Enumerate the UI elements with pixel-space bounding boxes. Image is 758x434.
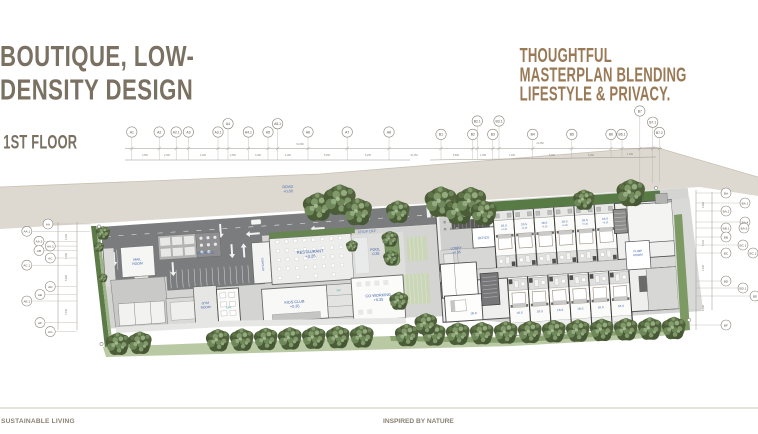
svg-text:1,350: 1,350: [627, 153, 634, 156]
svg-text:BA.1: BA.1: [742, 201, 749, 205]
svg-text:3,000: 3,000: [255, 154, 262, 157]
svg-text:5,250: 5,250: [365, 154, 372, 157]
svg-text:7,200: 7,200: [65, 308, 68, 315]
svg-text:B6.1: B6.1: [619, 133, 626, 137]
svg-text:+3.25: +3.25: [305, 253, 316, 259]
svg-text:A6: A6: [306, 130, 310, 134]
svg-text:5,250: 5,250: [324, 154, 331, 157]
svg-text:SUSTAINABLE LIVING: SUSTAINABLE LIVING: [1, 418, 75, 425]
svg-text:+0.35: +0.35: [290, 304, 300, 309]
svg-text:2,500: 2,500: [230, 154, 237, 157]
svg-text:AA.1: AA.1: [23, 230, 30, 234]
svg-text:4,000: 4,000: [285, 154, 292, 157]
svg-text:5,600: 5,600: [65, 274, 68, 281]
svg-text:+0.35: +0.35: [374, 298, 384, 303]
svg-text:LIFESTYLE & PRIVACY.: LIFESTYLE & PRIVACY.: [520, 81, 671, 105]
svg-text:4,200: 4,200: [702, 264, 705, 271]
svg-text:+0.00: +0.00: [283, 189, 293, 194]
svg-text:A2: A2: [157, 130, 161, 134]
svg-text:5,840: 5,840: [453, 154, 460, 157]
svg-text:AA.3: AA.3: [47, 244, 54, 248]
svg-text:B7: B7: [638, 109, 642, 113]
svg-text:BD.1: BD.1: [740, 286, 747, 290]
svg-text:WC: WC: [336, 288, 341, 292]
svg-text:1B.S: 1B.S: [470, 311, 477, 315]
svg-text:ROOM: ROOM: [201, 305, 212, 310]
svg-text:AC: AC: [48, 256, 53, 260]
svg-text:BF: BF: [724, 323, 728, 327]
svg-text:AE: AE: [38, 293, 42, 297]
svg-text:AA.2: AA.2: [36, 240, 43, 244]
svg-text:4,000: 4,000: [200, 154, 207, 157]
svg-text:1,350: 1,350: [480, 154, 487, 157]
svg-text:AG: AG: [48, 330, 53, 334]
svg-text:A5: A5: [266, 130, 270, 134]
svg-text:AC.1: AC.1: [23, 264, 30, 268]
svg-text:A2.1: A2.1: [173, 130, 180, 134]
svg-text:3,500: 3,500: [142, 154, 149, 157]
svg-text:AB: AB: [37, 249, 41, 253]
svg-text:SPA: SPA: [226, 305, 232, 309]
svg-text:B7.2: B7.2: [656, 131, 663, 135]
svg-text:BOUTIQUE, LOW-: BOUTIQUE, LOW-: [0, 41, 194, 72]
svg-text:+0.35: +0.35: [452, 250, 461, 255]
svg-text:OFFICE: OFFICE: [478, 236, 490, 241]
svg-text:10,150: 10,150: [410, 154, 418, 157]
svg-text:INSPIRED BY NATURE: INSPIRED BY NATURE: [383, 418, 454, 425]
svg-text:41,280: 41,280: [536, 142, 544, 145]
svg-text:A5.1: A5.1: [274, 122, 281, 126]
svg-text:2,500: 2,500: [65, 233, 68, 240]
svg-text:BC.1: BC.1: [740, 243, 747, 247]
svg-text:-0.35: -0.35: [371, 252, 379, 257]
svg-text:B3.1: B3.1: [496, 119, 503, 123]
svg-text:BB: BB: [724, 235, 728, 239]
svg-text:B2.1: B2.1: [474, 119, 481, 123]
svg-text:A7: A7: [345, 130, 349, 134]
svg-text:7,200: 7,200: [509, 154, 516, 157]
svg-text:BA.5: BA.5: [741, 226, 748, 230]
svg-text:6,300: 6,300: [702, 304, 705, 311]
svg-text:BE: BE: [753, 294, 757, 298]
svg-text:51,680: 51,680: [296, 143, 304, 146]
svg-text:A8: A8: [387, 130, 391, 134]
svg-text:A3: A3: [186, 130, 190, 134]
svg-text:A3.1: A3.1: [215, 130, 222, 134]
svg-text:BC: BC: [724, 251, 729, 255]
svg-text:ROOM: ROOM: [633, 253, 643, 258]
svg-text:A4: A4: [226, 122, 230, 126]
svg-text:BA.2: BA.2: [723, 209, 730, 213]
svg-text:B5: B5: [570, 133, 574, 137]
svg-text:5,000: 5,000: [549, 154, 556, 157]
svg-text:AE.1: AE.1: [23, 299, 30, 303]
svg-text:A1: A1: [130, 130, 134, 134]
svg-text:ROOM: ROOM: [132, 261, 143, 266]
svg-text:B6: B6: [609, 133, 613, 137]
svg-text:A4.1: A4.1: [245, 130, 252, 134]
svg-text:B3: B3: [491, 133, 495, 137]
svg-text:BC.2: BC.2: [750, 251, 757, 255]
svg-text:DENSITY DESIGN: DENSITY DESIGN: [0, 75, 193, 106]
svg-text:AD: AD: [48, 285, 53, 289]
svg-text:B1: B1: [439, 133, 443, 137]
svg-text:BB.1: BB.1: [723, 226, 730, 230]
svg-text:B7.1: B7.1: [649, 121, 656, 125]
svg-text:1ST FLOOR: 1ST FLOOR: [3, 131, 77, 153]
svg-text:2,680: 2,680: [702, 201, 705, 208]
svg-text:B4: B4: [531, 133, 535, 137]
svg-text:BD: BD: [724, 279, 729, 283]
svg-text:AF: AF: [38, 321, 42, 325]
svg-text:5,000: 5,000: [588, 154, 595, 157]
svg-text:BA.4: BA.4: [742, 220, 749, 224]
svg-text:B2: B2: [471, 133, 475, 137]
svg-text:2,300: 2,300: [164, 154, 171, 157]
